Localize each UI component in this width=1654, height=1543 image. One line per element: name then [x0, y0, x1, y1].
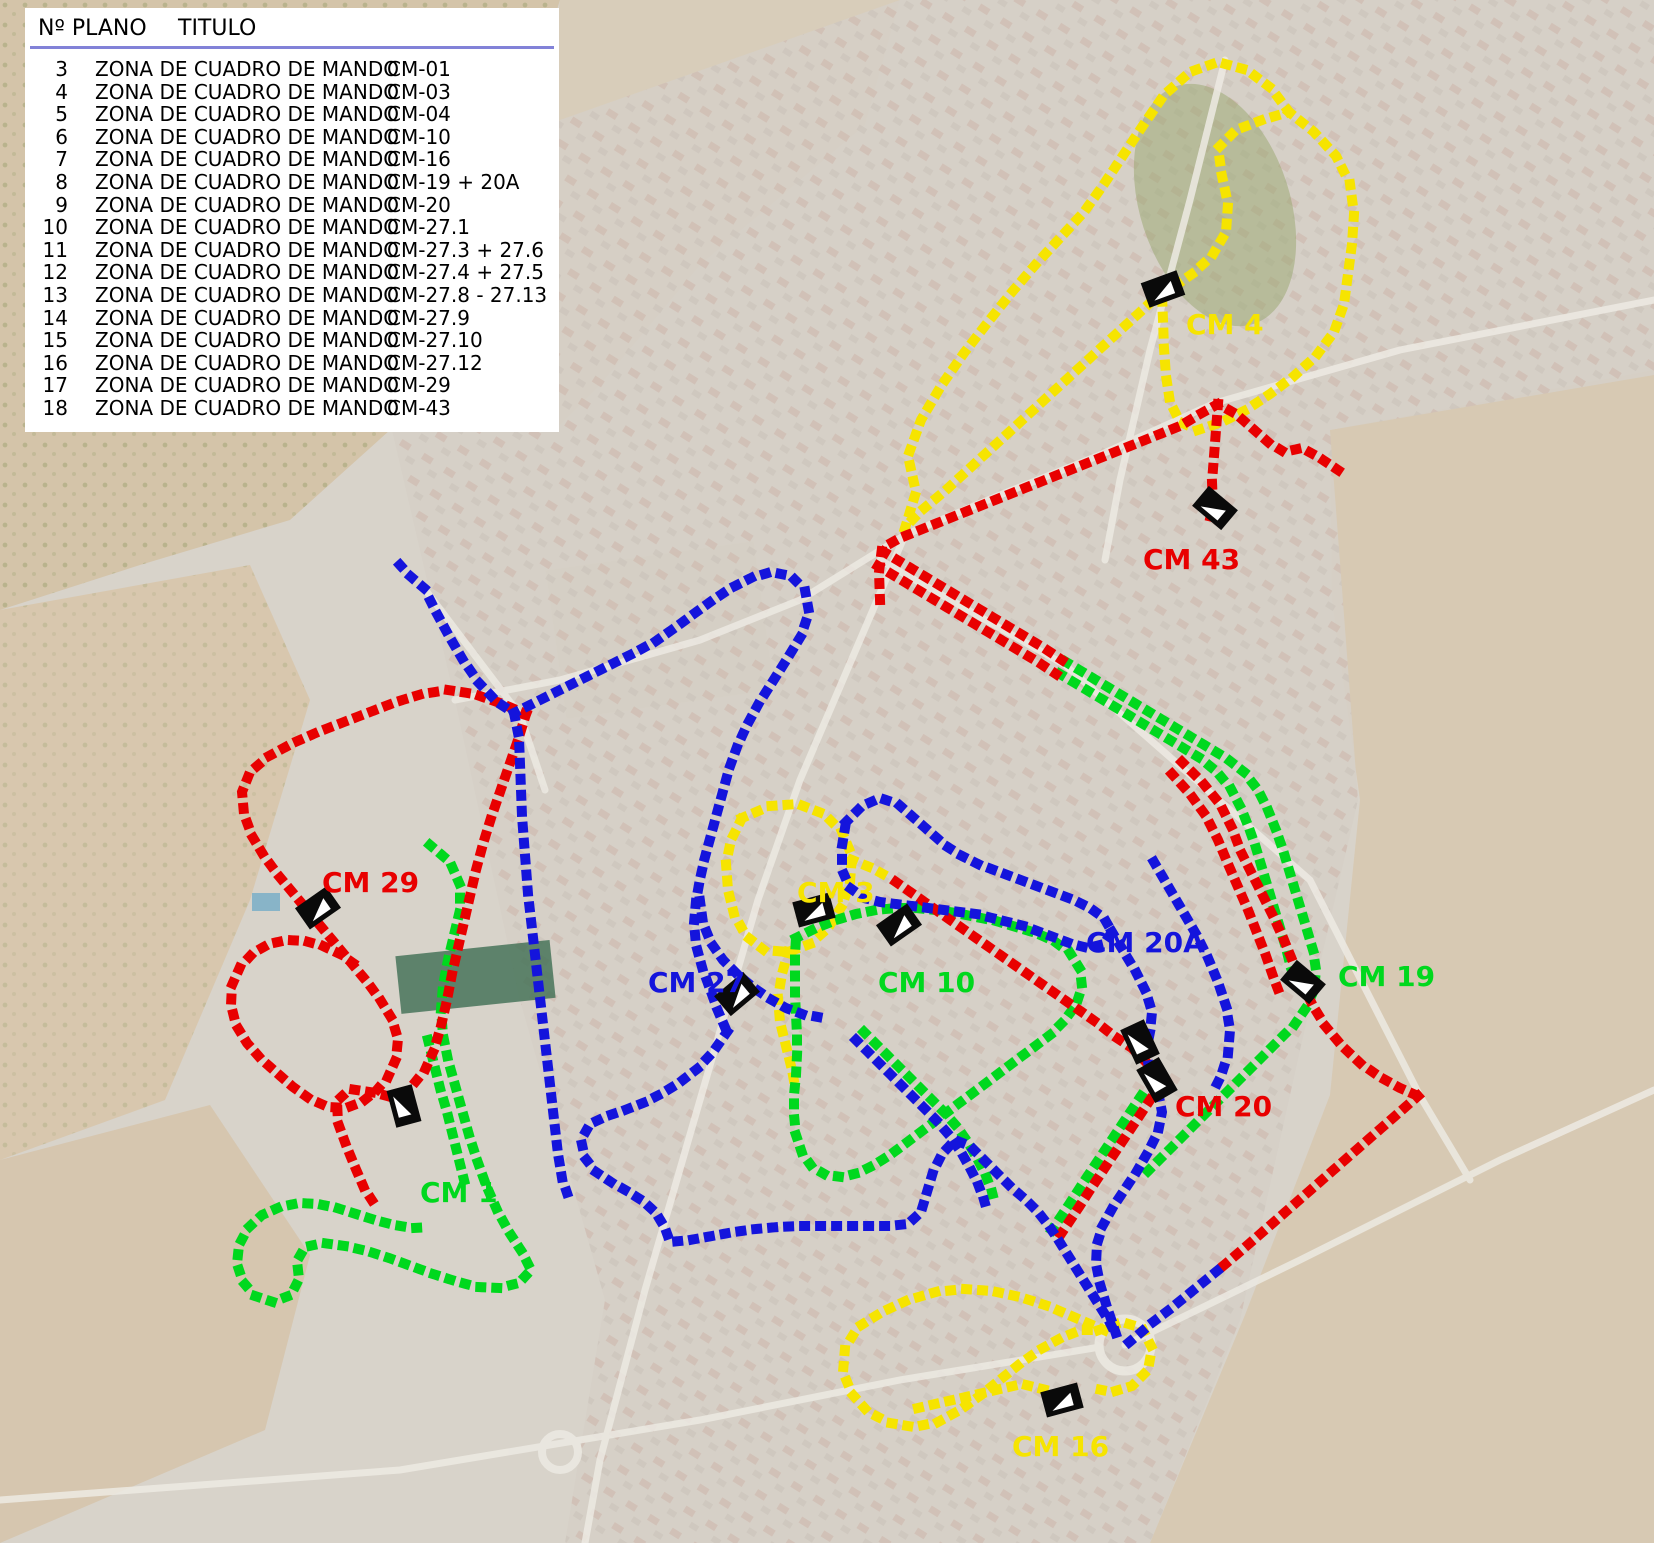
zone-label: CM 43 [1143, 543, 1240, 576]
zone-label: CM 20 [1175, 1090, 1272, 1123]
legend-zone-code: CM-27.1 [387, 216, 559, 239]
plan-canvas: CM 4CM 43CM 29CM 3CM 20ACM 27CM 10CM 19C… [0, 0, 1654, 1543]
legend-row: 18 ZONA DE CUADRO DE MANDO CM-43 [25, 397, 559, 420]
legend-plano-number: 18 [33, 397, 68, 420]
legend-plano-number: 9 [33, 194, 68, 217]
legend-row: 11 ZONA DE CUADRO DE MANDO CM-27.3 + 27.… [25, 239, 559, 262]
legend-row: 14 ZONA DE CUADRO DE MANDO CM-27.9 [25, 307, 559, 330]
legend-row: 6 ZONA DE CUADRO DE MANDO CM-10 [25, 126, 559, 149]
legend-zone-title: ZONA DE CUADRO DE MANDO [95, 261, 387, 284]
legend-zone-code: CM-19 + 20A [387, 171, 559, 194]
legend-row: 16 ZONA DE CUADRO DE MANDO CM-27.12 [25, 352, 559, 375]
legend-zone-code: CM-03 [387, 81, 559, 104]
legend-zone-code: CM-27.4 + 27.5 [387, 261, 559, 284]
legend-zone-code: CM-01 [387, 58, 559, 81]
zone-label: CM 29 [322, 866, 419, 899]
legend-zone-title: ZONA DE CUADRO DE MANDO [95, 352, 387, 375]
legend-plano-number: 16 [33, 352, 68, 375]
zone-label: CM 19 [1338, 960, 1435, 993]
legend-row: 10 ZONA DE CUADRO DE MANDO CM-27.1 [25, 216, 559, 239]
zone-label: CM 4 [1186, 308, 1264, 341]
legend-plano-number: 3 [33, 58, 68, 81]
legend-zone-title: ZONA DE CUADRO DE MANDO [95, 329, 387, 352]
legend-plano-number: 5 [33, 103, 68, 126]
zone-label: CM 16 [1012, 1430, 1109, 1463]
legend-plano-number: 7 [33, 148, 68, 171]
legend-zone-title: ZONA DE CUADRO DE MANDO [95, 81, 387, 104]
pool [252, 893, 280, 911]
legend-row: 12 ZONA DE CUADRO DE MANDO CM-27.4 + 27.… [25, 261, 559, 284]
legend-zone-code: CM-10 [387, 126, 559, 149]
legend-zone-title: ZONA DE CUADRO DE MANDO [95, 397, 387, 420]
zone-label: CM 27 [648, 966, 745, 999]
legend-zone-title: ZONA DE CUADRO DE MANDO [95, 171, 387, 194]
legend-row: 3 ZONA DE CUADRO DE MANDO CM-01 [25, 58, 559, 81]
legend-zone-title: ZONA DE CUADRO DE MANDO [95, 307, 387, 330]
legend-row: 7 ZONA DE CUADRO DE MANDO CM-16 [25, 148, 559, 171]
legend-zone-title: ZONA DE CUADRO DE MANDO [95, 374, 387, 397]
legend-zone-code: CM-27.12 [387, 352, 559, 375]
legend-col-titulo: TITULO [178, 16, 256, 41]
legend-panel: Nº PLANO TITULO 3 ZONA DE CUADRO DE MAND… [25, 8, 559, 432]
zone-label: CM 1 [420, 1176, 498, 1209]
legend-row: 15 ZONA DE CUADRO DE MANDO CM-27.10 [25, 329, 559, 352]
legend-plano-number: 14 [33, 307, 68, 330]
legend-plano-number: 8 [33, 171, 68, 194]
legend-zone-code: CM-29 [387, 374, 559, 397]
legend-row: 4 ZONA DE CUADRO DE MANDO CM-03 [25, 81, 559, 104]
legend-rows: 3 ZONA DE CUADRO DE MANDO CM-01 4 ZONA D… [25, 58, 559, 420]
legend-plano-number: 17 [33, 374, 68, 397]
legend-zone-code: CM-04 [387, 103, 559, 126]
legend-divider [30, 46, 554, 49]
legend-zone-code: CM-16 [387, 148, 559, 171]
legend-zone-title: ZONA DE CUADRO DE MANDO [95, 194, 387, 217]
legend-zone-code: CM-27.10 [387, 329, 559, 352]
legend-zone-title: ZONA DE CUADRO DE MANDO [95, 284, 387, 307]
legend-row: 9 ZONA DE CUADRO DE MANDO CM-20 [25, 194, 559, 217]
legend-plano-number: 6 [33, 126, 68, 149]
legend-plano-number: 11 [33, 239, 68, 262]
legend-plano-number: 10 [33, 216, 68, 239]
legend-row: 8 ZONA DE CUADRO DE MANDO CM-19 + 20A [25, 171, 559, 194]
legend-plano-number: 12 [33, 261, 68, 284]
legend-zone-title: ZONA DE CUADRO DE MANDO [95, 216, 387, 239]
legend-zone-code: CM-27.9 [387, 307, 559, 330]
zone-label: CM 20A [1086, 926, 1205, 959]
legend-zone-title: ZONA DE CUADRO DE MANDO [95, 103, 387, 126]
legend-zone-title: ZONA DE CUADRO DE MANDO [95, 126, 387, 149]
legend-zone-code: CM-27.3 + 27.6 [387, 239, 559, 262]
legend-row: 5 ZONA DE CUADRO DE MANDO CM-04 [25, 103, 559, 126]
legend-zone-title: ZONA DE CUADRO DE MANDO [95, 148, 387, 171]
legend-plano-number: 15 [33, 329, 68, 352]
zone-label: CM 10 [878, 966, 975, 999]
legend-zone-code: CM-27.8 - 27.13 [387, 284, 559, 307]
legend-zone-code: CM-20 [387, 194, 559, 217]
legend-plano-number: 13 [33, 284, 68, 307]
legend-zone-title: ZONA DE CUADRO DE MANDO [95, 58, 387, 81]
legend-zone-title: ZONA DE CUADRO DE MANDO [95, 239, 387, 262]
legend-row: 17 ZONA DE CUADRO DE MANDO CM-29 [25, 374, 559, 397]
legend-row: 13 ZONA DE CUADRO DE MANDO CM-27.8 - 27.… [25, 284, 559, 307]
legend-zone-code: CM-43 [387, 397, 559, 420]
legend-header: Nº PLANO TITULO [25, 16, 559, 41]
zone-label: CM 3 [797, 876, 875, 909]
legend-col-plano: Nº PLANO [38, 16, 178, 41]
legend-plano-number: 4 [33, 81, 68, 104]
